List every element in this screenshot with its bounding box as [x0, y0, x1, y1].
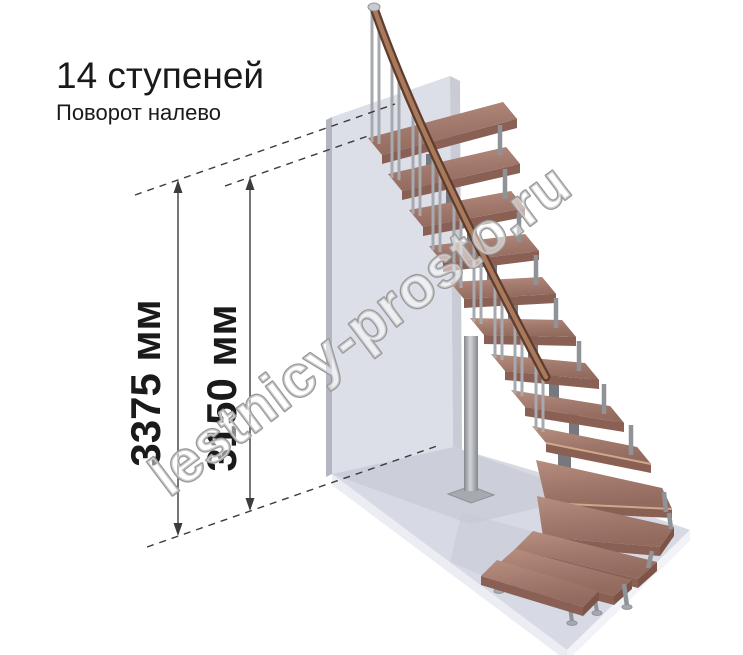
product-illustration: 3375 мм 3150 мм 14 ступеней Поворот нале…: [0, 0, 743, 655]
leg-foot: [592, 611, 602, 616]
support-column-post: [464, 336, 478, 491]
winder-post: [664, 492, 666, 512]
page-subtitle: Поворот налево: [56, 100, 221, 125]
staircase-3d-drawing: 3375 мм 3150 мм 14 ступеней Поворот нале…: [0, 0, 743, 655]
title-block: 14 ступеней Поворот налево: [56, 55, 264, 125]
winder-post: [624, 584, 627, 606]
arrow-down: [246, 498, 255, 511]
arrow-up: [174, 180, 183, 193]
arrow-up: [246, 177, 255, 190]
leg-foot: [622, 605, 632, 610]
wall-left-edge: [326, 117, 332, 477]
arrow-down: [174, 523, 183, 536]
leg-foot: [567, 621, 577, 626]
page-title: 14 ступеней: [56, 55, 264, 96]
handrail-top-cap: [368, 3, 380, 11]
winder-post: [669, 513, 671, 529]
